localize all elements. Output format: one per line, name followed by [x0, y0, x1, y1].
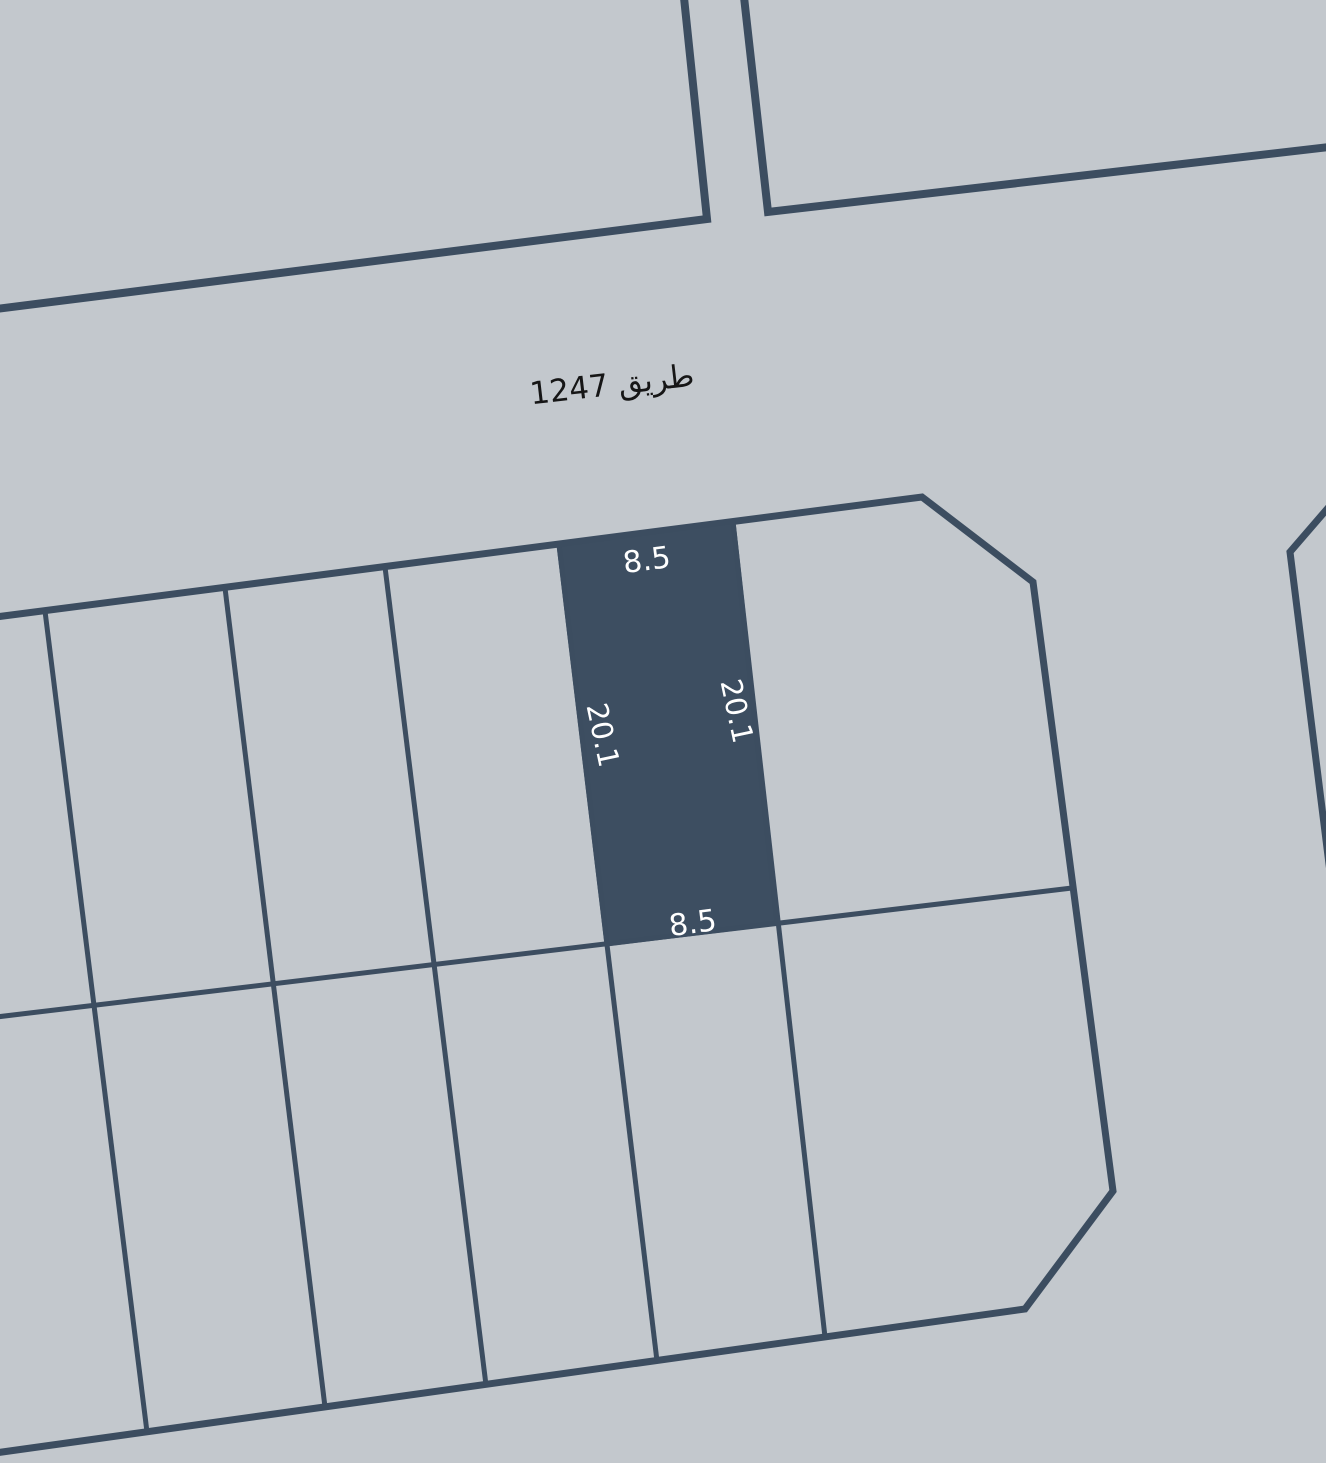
parcel-map: 8.5 8.5 20.1 20.1 طريق 1247: [0, 0, 1326, 1463]
parcel-dimension-bottom: 8.5: [667, 903, 719, 944]
parcel-dimension-top: 8.5: [621, 540, 673, 581]
